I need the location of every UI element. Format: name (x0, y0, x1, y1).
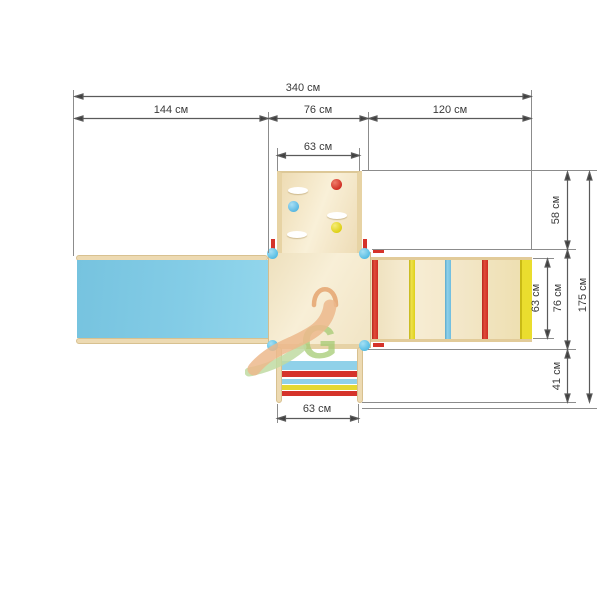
dim-label-ladder-span: 63 см (529, 258, 543, 338)
dim-label-middle-section: 76 см (278, 103, 358, 117)
dim-label-stairs-width: 63 см (277, 402, 357, 416)
dim-label-total-height: 175 см (576, 255, 590, 335)
dim-label-left-section: 144 см (131, 103, 211, 117)
playground-plan-drawing: G (0, 0, 600, 600)
dim-label-lower-right-height: 41 см (550, 336, 564, 416)
dim-label-right-section: 120 см (410, 103, 490, 117)
dim-label-upper-right-height: 58 см (549, 170, 563, 250)
dim-label-platform-height: 76 см (551, 258, 565, 338)
dim-label-wall-width: 63 см (278, 140, 358, 154)
dim-label-total-width: 340 см (263, 81, 343, 95)
